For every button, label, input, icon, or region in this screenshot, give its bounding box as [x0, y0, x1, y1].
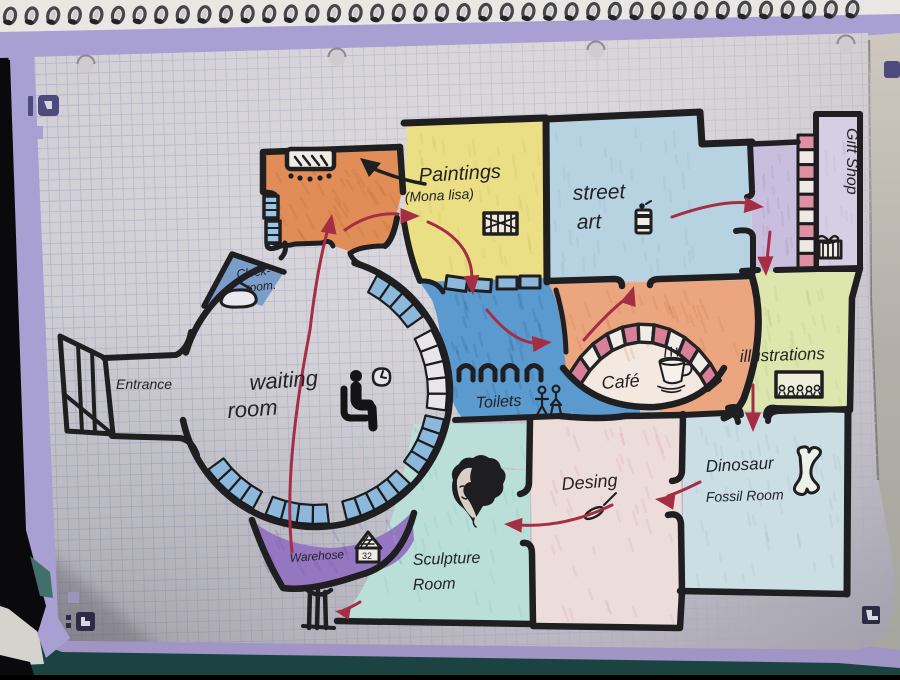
- svg-text:Dinosaur: Dinosaur: [705, 453, 775, 476]
- svg-text:32: 32: [362, 551, 372, 561]
- svg-text:Paintings: Paintings: [418, 161, 501, 187]
- svg-text:Room: Room: [413, 576, 456, 594]
- svg-text:illustrations: illustrations: [739, 344, 825, 366]
- svg-text:Toilets: Toilets: [475, 393, 521, 412]
- svg-text:waiting: waiting: [249, 365, 320, 395]
- svg-text:art: art: [576, 210, 602, 234]
- svg-text:Café: Café: [601, 370, 640, 393]
- svg-text:Sculpture: Sculpture: [413, 550, 481, 569]
- svg-text:Fossil Room: Fossil Room: [706, 486, 785, 505]
- svg-text:Desing: Desing: [561, 470, 618, 494]
- svg-text:street: street: [572, 180, 626, 205]
- svg-text:room: room: [227, 395, 279, 423]
- svg-text:Gift Shop: Gift Shop: [843, 128, 860, 195]
- svg-text:Entrance: Entrance: [116, 376, 172, 392]
